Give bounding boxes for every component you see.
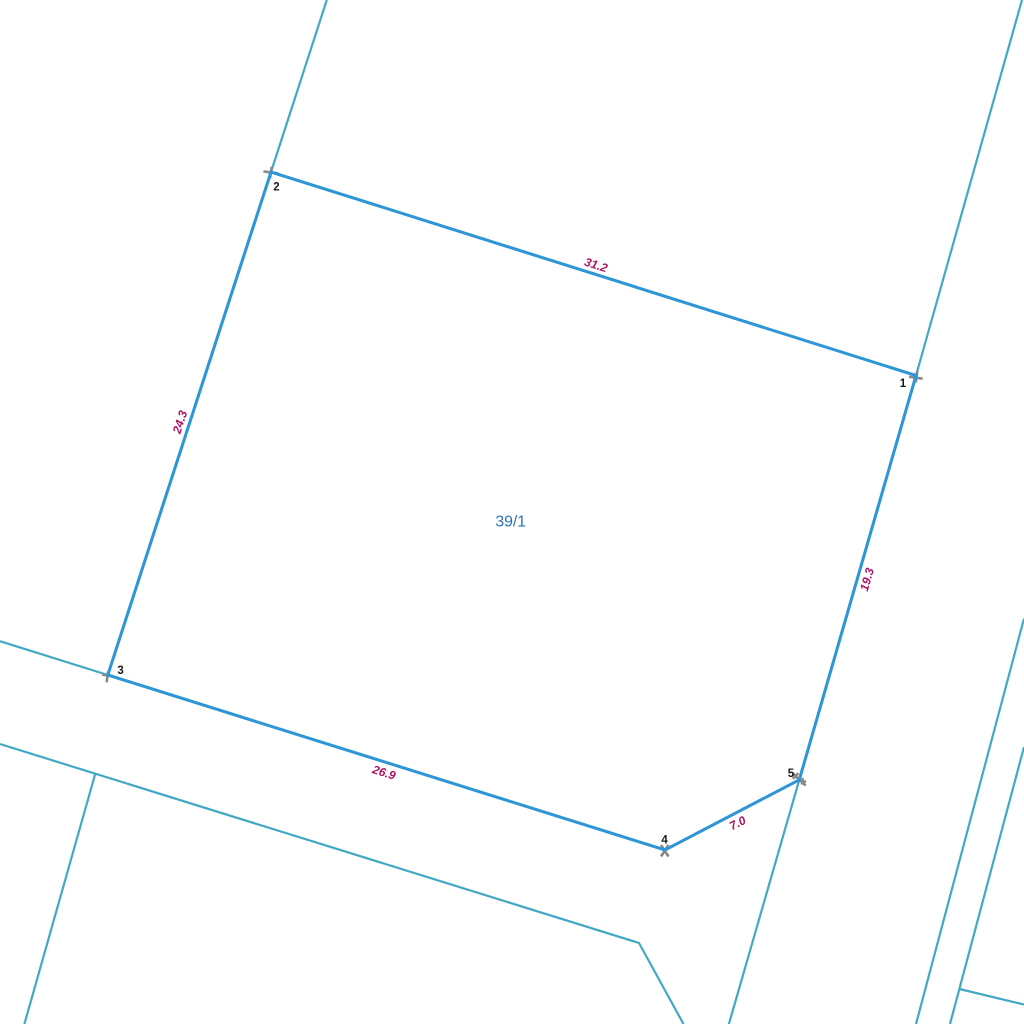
svg-text:3: 3 bbox=[117, 665, 123, 677]
svg-text:39/1: 39/1 bbox=[495, 514, 526, 531]
svg-text:4: 4 bbox=[661, 835, 668, 847]
svg-text:1: 1 bbox=[900, 378, 907, 390]
svg-text:5: 5 bbox=[788, 768, 795, 780]
svg-text:2: 2 bbox=[273, 181, 279, 193]
